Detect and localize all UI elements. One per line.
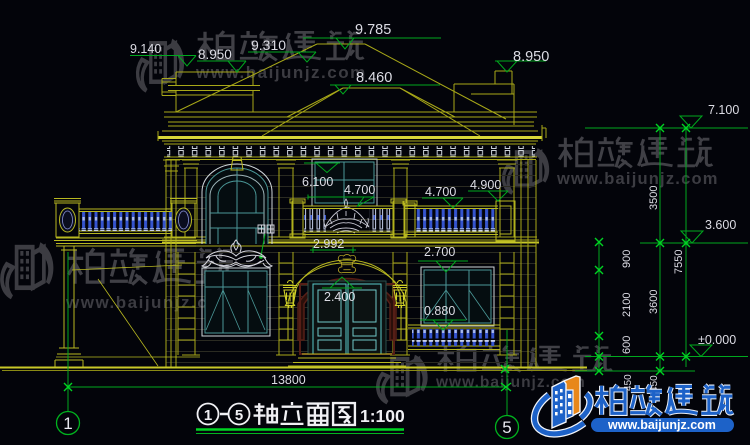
svg-text:www.baijunjz.com: www.baijunjz.com: [607, 418, 716, 432]
svg-text:3600: 3600: [648, 290, 660, 314]
svg-text:8.950: 8.950: [513, 49, 549, 65]
svg-text:2.400: 2.400: [324, 290, 355, 304]
svg-text:2.700: 2.700: [424, 245, 455, 259]
svg-text:5: 5: [235, 407, 243, 424]
svg-text:www.baijunjz.com: www.baijunjz.com: [556, 170, 719, 188]
svg-text:13800: 13800: [271, 373, 306, 387]
svg-text:6.100: 6.100: [302, 175, 333, 189]
svg-text:3.600: 3.600: [705, 218, 736, 232]
svg-text:0.880: 0.880: [424, 304, 455, 318]
svg-text:7550: 7550: [673, 250, 685, 274]
svg-text:7.100: 7.100: [708, 103, 739, 117]
svg-text:4.700: 4.700: [344, 183, 375, 197]
svg-text:8.950: 8.950: [198, 47, 232, 62]
svg-text:9.310: 9.310: [251, 37, 286, 53]
svg-text:9.140: 9.140: [130, 42, 161, 56]
svg-text:2100: 2100: [621, 293, 633, 317]
svg-text:600: 600: [621, 336, 633, 354]
svg-text:3500: 3500: [648, 186, 660, 210]
svg-text:±0.000: ±0.000: [698, 333, 736, 347]
svg-text:2.992: 2.992: [313, 237, 344, 251]
svg-text:8.460: 8.460: [356, 70, 392, 86]
svg-text:9.785: 9.785: [355, 22, 391, 38]
svg-text:4.900: 4.900: [470, 178, 501, 192]
svg-text:1: 1: [204, 407, 212, 424]
svg-text:5: 5: [502, 418, 511, 437]
svg-text:1:100: 1:100: [360, 406, 405, 426]
svg-text:1: 1: [63, 414, 72, 433]
svg-text:900: 900: [621, 250, 633, 268]
svg-text:4.700: 4.700: [425, 185, 456, 199]
